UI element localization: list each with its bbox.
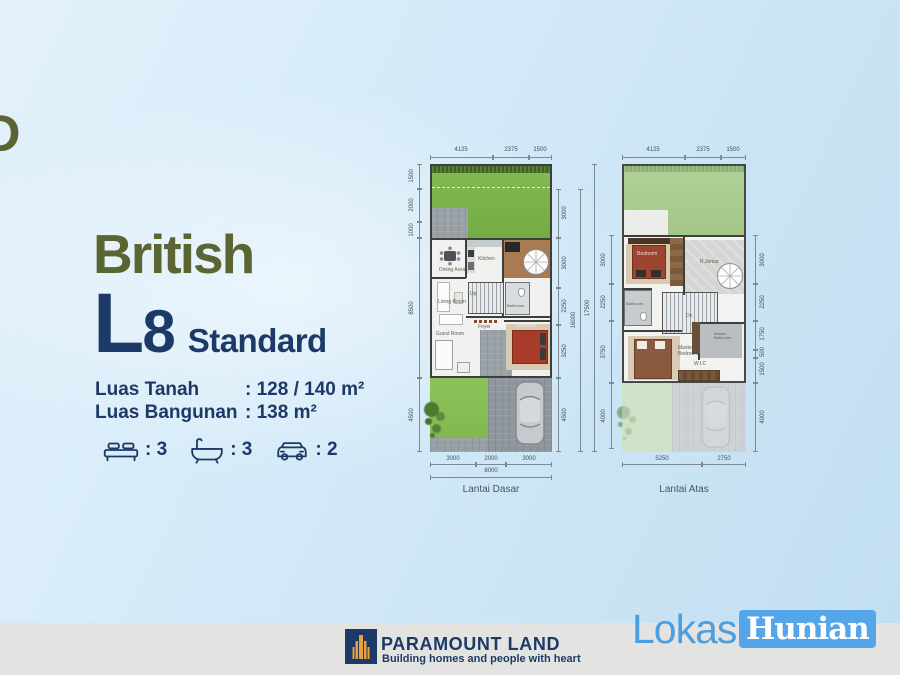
feature-bathrooms: : 3 xyxy=(189,436,252,464)
model-suffix: Standard xyxy=(188,322,327,360)
fade-overlay xyxy=(622,383,746,452)
dim-label: 3000 xyxy=(562,256,568,269)
car xyxy=(514,380,546,446)
dim-line xyxy=(558,238,559,288)
dim-line xyxy=(419,164,420,189)
lokasihunian-logo-box: Hunian xyxy=(739,610,876,648)
model-letter: L xyxy=(93,284,142,364)
plot-outline xyxy=(622,164,746,383)
dim-label: 16000 xyxy=(571,312,577,329)
dim-label: 1500 xyxy=(760,362,766,375)
dim-line xyxy=(430,477,552,478)
dim-label: 1750 xyxy=(760,327,766,340)
bathroom-count: : 3 xyxy=(230,439,252,461)
dim-line xyxy=(419,238,420,378)
dim-line xyxy=(558,378,559,452)
lokasihunian-logo-dark: Hunian xyxy=(746,611,869,647)
floorplan-lantai-dasar: Dining Area Kitchen Up Bathroom Living R… xyxy=(430,164,552,452)
dim-label: 5250 xyxy=(655,456,668,462)
dim-line xyxy=(430,157,493,158)
dim-label: 2000 xyxy=(409,198,415,211)
dim-line xyxy=(419,189,420,222)
dim-label: 2250 xyxy=(760,295,766,308)
feature-garage: : 2 xyxy=(274,437,337,463)
dim-label: 4125 xyxy=(646,147,659,153)
dim-line xyxy=(506,464,552,465)
dim-label: 3250 xyxy=(562,344,568,357)
dim-label: 3000 xyxy=(760,253,766,266)
dim-label: 4000 xyxy=(760,410,766,423)
dim-line xyxy=(611,321,612,383)
dim-line xyxy=(594,164,595,452)
dim-line xyxy=(558,325,559,378)
dim-label: 500 xyxy=(760,347,766,357)
plan-label-lantai-dasar: Lantai Dasar xyxy=(463,484,520,495)
dim-label: 2250 xyxy=(562,299,568,312)
dim-label: 1000 xyxy=(409,223,415,236)
car-icon xyxy=(274,437,310,463)
dim-line xyxy=(755,284,756,321)
brochure-page: D British L 8 Standard Luas Tanah : 128 … xyxy=(0,0,900,675)
dim-line xyxy=(529,157,552,158)
spec-row-luas-bangunan: Luas Bangunan : 138 m² xyxy=(95,401,364,424)
dim-line xyxy=(622,157,685,158)
dim-line xyxy=(755,358,756,383)
dim-line xyxy=(755,235,756,284)
dim-label: 3000 xyxy=(522,456,535,462)
dim-line xyxy=(622,464,702,465)
plot-outline xyxy=(430,164,552,378)
dim-line xyxy=(611,284,612,321)
spec-label: Luas Tanah xyxy=(95,378,245,401)
paramount-brand-name: PARAMOUNT LAND xyxy=(381,634,560,655)
cropped-letter: D xyxy=(0,104,21,164)
dim-line xyxy=(419,378,420,452)
paramount-logo xyxy=(345,629,377,664)
dim-label: 2250 xyxy=(601,295,607,308)
dim-line xyxy=(702,464,746,465)
dim-label: 4125 xyxy=(454,147,467,153)
dim-label: 1500 xyxy=(409,169,415,182)
dim-label: 3000 xyxy=(562,206,568,219)
dim-label: 4000 xyxy=(601,409,607,422)
dim-label: 2375 xyxy=(504,147,517,153)
spec-value: : 128 / 140 m² xyxy=(245,378,364,401)
dim-label: 4500 xyxy=(562,408,568,421)
paramount-tagline: Building homes and people with heart xyxy=(382,653,581,665)
dim-line xyxy=(558,189,559,238)
dim-label: 3000 xyxy=(446,456,459,462)
dim-label: 3000 xyxy=(601,253,607,266)
plan-label-lantai-atas: Lantai Atas xyxy=(659,484,708,495)
spec-value: : 138 m² xyxy=(245,401,317,424)
bed-icon xyxy=(102,437,140,463)
dim-line xyxy=(558,288,559,325)
dim-label: 1500 xyxy=(533,147,546,153)
dim-label: 17500 xyxy=(585,300,591,317)
model-number: 8 xyxy=(142,303,175,360)
dim-label: 2375 xyxy=(696,147,709,153)
dim-label: 1500 xyxy=(726,147,739,153)
tree xyxy=(424,402,439,417)
dim-line xyxy=(611,383,612,449)
dim-line xyxy=(419,222,420,238)
dim-line xyxy=(493,157,529,158)
dim-label: 2000 xyxy=(484,456,497,462)
dim-line xyxy=(580,189,581,452)
feature-list: : 3 : 3 : 2 xyxy=(102,436,338,464)
lokasihunian-logo-light: Lokasi xyxy=(632,606,745,653)
bedroom-count: : 3 xyxy=(145,439,167,461)
dim-label: 3750 xyxy=(601,345,607,358)
dim-line xyxy=(430,464,476,465)
dim-line xyxy=(755,350,756,358)
dim-line xyxy=(476,464,506,465)
model-name: L 8 Standard xyxy=(93,284,327,364)
bathtub-icon xyxy=(189,436,225,464)
dim-label: 8000 xyxy=(484,468,497,474)
dim-line xyxy=(755,321,756,350)
dim-label: 4500 xyxy=(409,408,415,421)
dim-line xyxy=(755,383,756,452)
dim-line xyxy=(611,235,612,284)
dim-label: 2750 xyxy=(717,456,730,462)
dim-label: 8500 xyxy=(409,301,415,314)
feature-bedrooms: : 3 xyxy=(102,437,167,463)
spec-label: Luas Bangunan xyxy=(95,401,245,424)
specs-list: Luas Tanah : 128 / 140 m² Luas Bangunan … xyxy=(95,378,364,424)
spec-row-luas-tanah: Luas Tanah : 128 / 140 m² xyxy=(95,378,364,401)
dim-line xyxy=(685,157,721,158)
walkway xyxy=(430,438,488,452)
floorplan-lantai-atas: Bedroom R.Jemur Bathroom Dn Master Bedro… xyxy=(622,164,746,452)
dim-line xyxy=(721,157,746,158)
building-icon xyxy=(351,634,371,660)
garage-count: : 2 xyxy=(315,439,337,461)
